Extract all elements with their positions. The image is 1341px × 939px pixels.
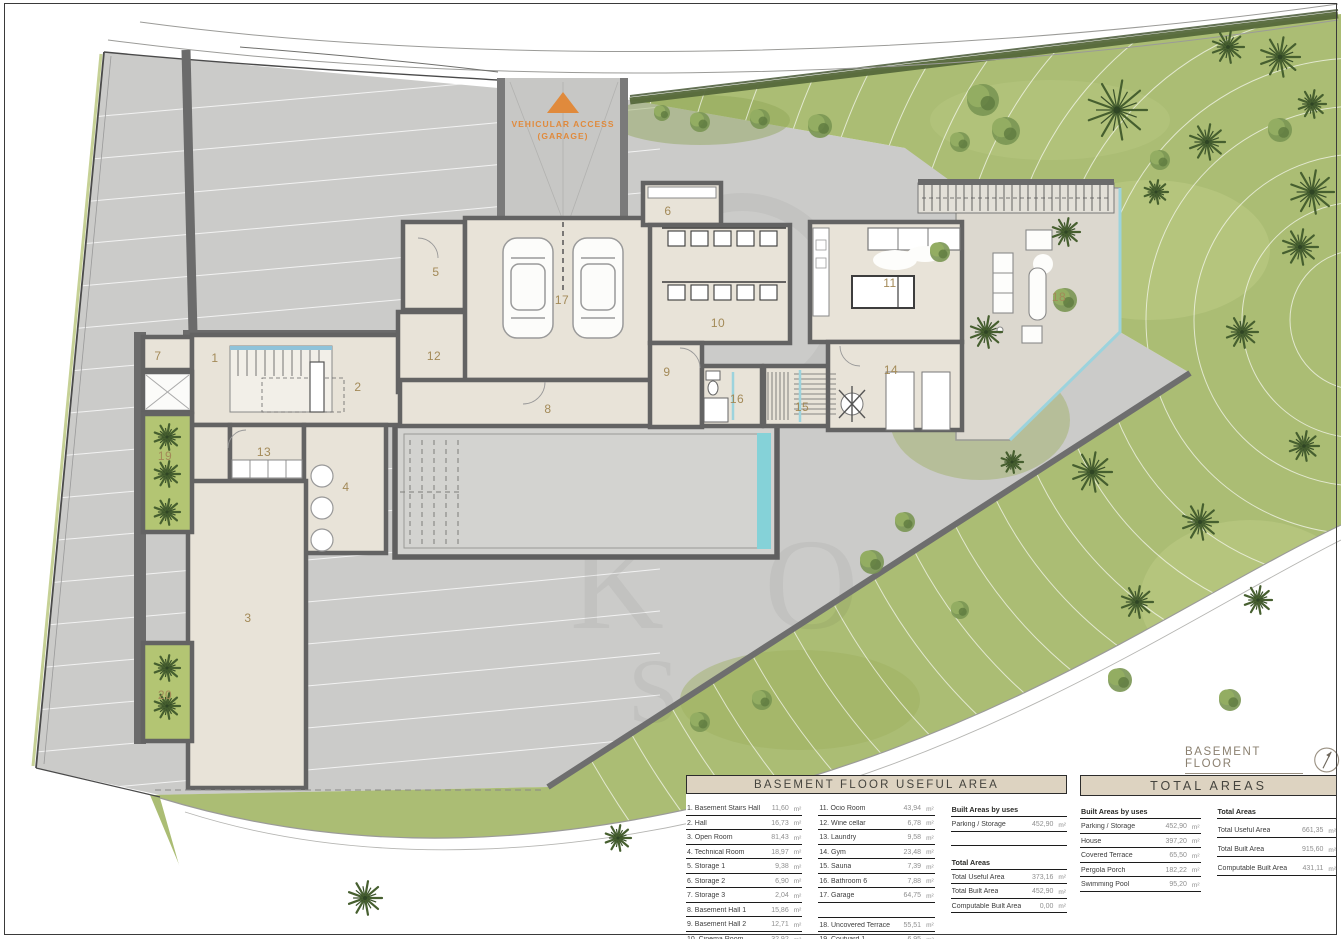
bush-icon xyxy=(750,109,770,129)
room-storage-3 xyxy=(143,337,192,370)
plan-sheet: K O S xyxy=(0,0,1341,939)
useful-col-2: 11. Ocio Room43,94m²12. Wine cellar6,78m… xyxy=(818,801,934,939)
table-row: 14. Gym23,48m² xyxy=(818,845,934,860)
table-row: 18. Uncovered Terrace55,51m² xyxy=(818,918,934,933)
vehicular-access-label: VEHICULAR ACCESS xyxy=(511,119,614,129)
bush-icon xyxy=(808,114,832,138)
exterior-stairs xyxy=(918,179,1114,213)
table-row: Covered Terrace65,50m² xyxy=(1080,848,1201,863)
floor-label: BASEMENT FLOOR xyxy=(1185,746,1303,774)
north-compass-icon xyxy=(1312,744,1341,776)
table-row: 6. Storage 26,90m² xyxy=(686,874,802,889)
table-row: 1. Basement Stairs Hall11,60m² xyxy=(686,801,802,816)
room-number-7: 7 xyxy=(154,349,161,363)
table-row: 9. Basement Hall 212,71m² xyxy=(686,917,802,932)
table-row: Computable Built Area431,11m² xyxy=(1217,857,1338,876)
built-areas-header: Built Areas by uses xyxy=(951,801,1067,817)
bush-icon xyxy=(1108,668,1132,692)
room-number-13: 13 xyxy=(257,445,271,459)
svg-text:S: S xyxy=(628,640,679,742)
room-number-14: 14 xyxy=(884,363,898,377)
room-basement-hall-2 xyxy=(650,343,702,427)
bush-icon xyxy=(860,550,884,574)
table-row: 12. Wine cellar6,78m² xyxy=(818,816,934,831)
bush-icon xyxy=(752,690,772,710)
bush-icon xyxy=(930,242,950,262)
table-row: 19. Coutyard 16,95m² xyxy=(818,932,934,939)
table-row: Computable Built Area0,00m² xyxy=(951,899,1067,914)
room-number-5: 5 xyxy=(432,265,439,279)
total-totals-header: Total Areas xyxy=(1217,803,1338,819)
total-areas-header: Total Areas xyxy=(951,854,1067,870)
room-number-19: 19 xyxy=(158,449,172,463)
car xyxy=(503,238,553,338)
driveway-wall-left xyxy=(497,78,505,220)
table-row: Total Built Area452,90m² xyxy=(951,884,1067,899)
total-areas-table: TOTAL AREAS Built Areas by uses Parking … xyxy=(1080,775,1337,892)
useful-col-3: Built Areas by uses Parking / Storage452… xyxy=(951,801,1067,939)
car xyxy=(573,238,623,338)
table-row: 10. Cinema Room32,92m² xyxy=(686,932,802,939)
pool-deck xyxy=(395,425,777,557)
table-row: 16. Bathroom 67,88m² xyxy=(818,874,934,889)
floor-tag: BASEMENT FLOOR xyxy=(1185,744,1341,776)
bush-icon xyxy=(690,112,710,132)
swimming-pool-water xyxy=(757,433,771,549)
room-number-8: 8 xyxy=(544,402,551,416)
room-number-2: 2 xyxy=(354,380,361,394)
room-number-12: 12 xyxy=(427,349,441,363)
table-row: Total Useful Area661,35m² xyxy=(1217,819,1338,838)
bush-icon xyxy=(654,105,670,121)
bush-icon xyxy=(967,84,999,116)
room-open-room xyxy=(188,481,306,788)
bush-icon xyxy=(895,512,915,532)
total-col-built: Built Areas by uses Parking / Storage452… xyxy=(1080,803,1201,892)
table-row: 8. Basement Hall 115,86m² xyxy=(686,903,802,918)
elevator-shaft xyxy=(143,372,192,412)
bush-icon xyxy=(1219,689,1241,711)
driveway-wall-right xyxy=(620,78,628,220)
table-row: Total Useful Area373,16m² xyxy=(951,870,1067,885)
useful-area-table: BASEMENT FLOOR USEFUL AREA 1. Basement S… xyxy=(686,775,1067,939)
room-number-10: 10 xyxy=(711,316,725,330)
room-basement-hall-1 xyxy=(400,380,652,426)
bush-icon xyxy=(992,117,1020,145)
bush-icon xyxy=(1150,150,1170,170)
bush-icon xyxy=(690,712,710,732)
table-row: 7. Storage 32,04m² xyxy=(686,888,802,903)
room-number-11: 11 xyxy=(883,276,896,290)
room-number-4: 4 xyxy=(342,480,349,494)
room-number-3: 3 xyxy=(244,611,251,625)
room-number-16: 16 xyxy=(730,392,744,406)
table-row: 17. Garage64,75m² xyxy=(818,888,934,903)
interior-stairs xyxy=(230,346,344,412)
bush-icon xyxy=(950,132,970,152)
useful-col-1: 1. Basement Stairs Hall11,60m²2. Hall16,… xyxy=(686,801,802,939)
room-number-20: 20 xyxy=(158,688,172,702)
table-row: 5. Storage 19,38m² xyxy=(686,859,802,874)
table-row: 4. Technical Room18,97m² xyxy=(686,845,802,860)
table-row: Swimming Pool95,20m² xyxy=(1080,877,1201,892)
vehicular-access-label-2: (GARAGE) xyxy=(538,131,589,141)
total-col-totals: Total Areas Total Useful Area661,35m²Tot… xyxy=(1217,803,1338,892)
room-number-1: 1 xyxy=(211,351,218,365)
table-row: Parking / Storage452,90m² xyxy=(1080,819,1201,834)
table-row: 3. Open Room81,43m² xyxy=(686,830,802,845)
table-row: Pergola Porch182,22m² xyxy=(1080,863,1201,878)
room-number-17: 17 xyxy=(555,293,569,307)
room-number-9: 9 xyxy=(663,365,670,379)
table-row: 11. Ocio Room43,94m² xyxy=(818,801,934,816)
bush-icon xyxy=(951,601,969,619)
table-row: House397,20m² xyxy=(1080,834,1201,849)
technical-tanks xyxy=(311,465,333,551)
room-number-15: 15 xyxy=(795,400,809,414)
bush-icon xyxy=(1268,118,1292,142)
total-built-header: Built Areas by uses xyxy=(1080,803,1201,819)
laundry-counter xyxy=(232,460,302,478)
room-number-18: 18 xyxy=(1052,290,1066,304)
table-row: 2. Hall16,73m² xyxy=(686,816,802,831)
total-areas-table-title: TOTAL AREAS xyxy=(1080,775,1337,796)
useful-area-table-title: BASEMENT FLOOR USEFUL AREA xyxy=(686,775,1067,794)
table-row: 15. Sauna7,39m² xyxy=(818,859,934,874)
table-row: Total Built Area915,60m² xyxy=(1217,838,1338,857)
table-row: 13. Laundry9,58m² xyxy=(818,830,934,845)
table-row: Parking / Storage452,90m² xyxy=(951,817,1067,832)
room-number-6: 6 xyxy=(664,204,671,218)
